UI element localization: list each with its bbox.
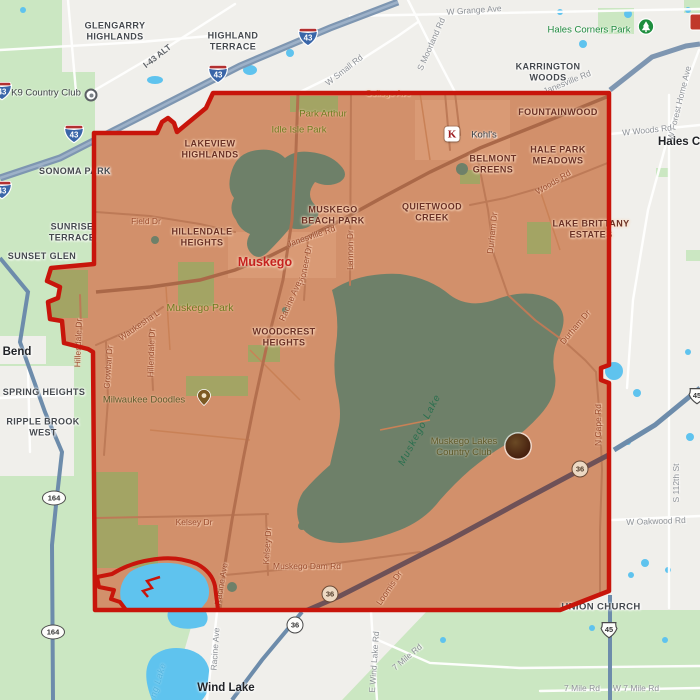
kohls-store-icon[interactable]: K bbox=[445, 127, 460, 142]
k9-country-club-pin-icon[interactable] bbox=[85, 89, 98, 102]
map-base-layer bbox=[0, 0, 700, 700]
muskego-lakes-country-club-logo-icon[interactable] bbox=[506, 434, 531, 459]
milwaukee-doodles-pin-icon[interactable] bbox=[197, 389, 211, 411]
park-tree-icon[interactable] bbox=[638, 18, 655, 40]
store-icon-partial[interactable] bbox=[690, 14, 700, 31]
map-canvas[interactable]: GLENGARRY HIGHLANDS HIGHLAND TERRACE KAR… bbox=[0, 0, 700, 700]
